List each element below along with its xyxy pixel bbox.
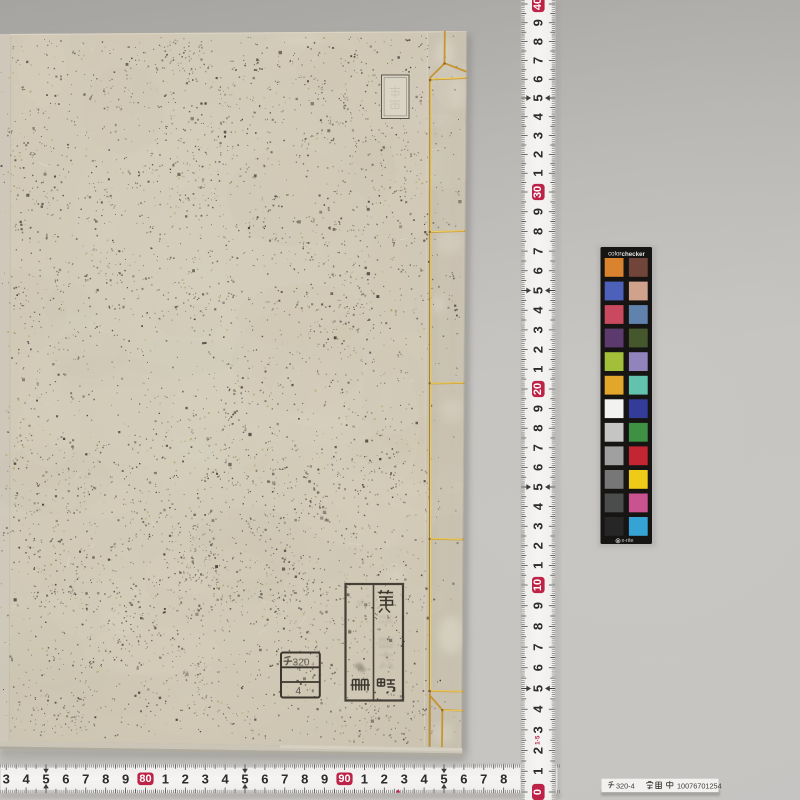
svg-text:3: 3 bbox=[531, 132, 546, 139]
svg-text:8: 8 bbox=[102, 771, 109, 786]
svg-text:9: 9 bbox=[531, 602, 546, 609]
svg-text:6: 6 bbox=[531, 664, 546, 671]
svg-text:2: 2 bbox=[531, 747, 546, 754]
svg-text:6: 6 bbox=[531, 267, 546, 274]
svg-text:4: 4 bbox=[531, 112, 546, 120]
svg-text:90: 90 bbox=[338, 773, 350, 785]
svg-text:8: 8 bbox=[531, 38, 546, 45]
svg-text:5: 5 bbox=[42, 771, 49, 786]
svg-text:1: 1 bbox=[531, 170, 546, 177]
svg-text:5: 5 bbox=[531, 685, 546, 692]
svg-text:20: 20 bbox=[532, 383, 544, 395]
svg-text:7: 7 bbox=[531, 444, 546, 451]
svg-text:8: 8 bbox=[531, 228, 546, 235]
svg-text:3: 3 bbox=[3, 771, 10, 786]
svg-text:4: 4 bbox=[22, 771, 30, 786]
svg-text:2: 2 bbox=[182, 771, 189, 786]
svg-text:7: 7 bbox=[82, 771, 89, 786]
svg-text:9: 9 bbox=[531, 208, 546, 215]
svg-text:8: 8 bbox=[531, 425, 546, 432]
svg-text:1: 1 bbox=[531, 768, 546, 775]
svg-text:2: 2 bbox=[531, 346, 546, 353]
svg-text:8: 8 bbox=[500, 771, 507, 786]
svg-text:4: 4 bbox=[221, 771, 229, 786]
svg-text:9: 9 bbox=[321, 771, 328, 786]
svg-text:320-4: 320-4 bbox=[616, 781, 635, 790]
svg-text:7: 7 bbox=[531, 57, 546, 64]
svg-text:10076701254: 10076701254 bbox=[677, 781, 722, 790]
svg-text:2: 2 bbox=[381, 771, 388, 786]
svg-text:2: 2 bbox=[531, 151, 546, 158]
svg-text:7: 7 bbox=[531, 643, 546, 650]
svg-text:4: 4 bbox=[531, 502, 546, 510]
svg-text:4: 4 bbox=[420, 771, 428, 786]
svg-text:1: 1 bbox=[361, 771, 368, 786]
svg-text:3: 3 bbox=[531, 326, 546, 333]
svg-text:5: 5 bbox=[531, 483, 546, 490]
svg-text:3: 3 bbox=[531, 726, 546, 733]
svg-text:3: 3 bbox=[401, 771, 408, 786]
svg-text:5: 5 bbox=[241, 771, 248, 786]
svg-text:6: 6 bbox=[261, 771, 268, 786]
svg-text:1·5: 1·5 bbox=[535, 735, 542, 745]
svg-text:6: 6 bbox=[531, 464, 546, 471]
svg-text:x-rite: x-rite bbox=[622, 538, 634, 544]
svg-text:9: 9 bbox=[531, 19, 546, 26]
svg-text:9: 9 bbox=[531, 405, 546, 412]
svg-text:8: 8 bbox=[531, 623, 546, 630]
svg-text:40: 40 bbox=[532, 0, 544, 10]
svg-text:9: 9 bbox=[122, 771, 129, 786]
svg-text:3: 3 bbox=[202, 771, 209, 786]
svg-text:1: 1 bbox=[162, 771, 169, 786]
svg-text:colorchecker: colorchecker bbox=[608, 250, 645, 257]
svg-text:6: 6 bbox=[531, 76, 546, 83]
svg-text:2: 2 bbox=[531, 542, 546, 549]
svg-text:10: 10 bbox=[532, 579, 544, 591]
svg-text:3: 3 bbox=[531, 523, 546, 530]
svg-text:4: 4 bbox=[312, 662, 315, 668]
svg-text:8: 8 bbox=[301, 771, 308, 786]
svg-text:4: 4 bbox=[531, 705, 546, 713]
svg-text:320: 320 bbox=[293, 657, 310, 668]
svg-text:6: 6 bbox=[460, 771, 467, 786]
svg-text:7: 7 bbox=[480, 771, 487, 786]
svg-text:7: 7 bbox=[531, 247, 546, 254]
svg-text:30: 30 bbox=[532, 186, 544, 198]
svg-text:7: 7 bbox=[281, 771, 288, 786]
svg-text:4: 4 bbox=[531, 306, 546, 314]
svg-text:0: 0 bbox=[532, 789, 544, 795]
svg-text:5: 5 bbox=[531, 94, 546, 101]
svg-text:5: 5 bbox=[440, 771, 447, 786]
svg-text:1: 1 bbox=[531, 562, 546, 569]
svg-text:4: 4 bbox=[296, 686, 302, 697]
svg-text:80: 80 bbox=[139, 773, 151, 785]
svg-text:1: 1 bbox=[531, 366, 546, 373]
svg-text:5: 5 bbox=[531, 287, 546, 294]
svg-text:6: 6 bbox=[62, 771, 69, 786]
